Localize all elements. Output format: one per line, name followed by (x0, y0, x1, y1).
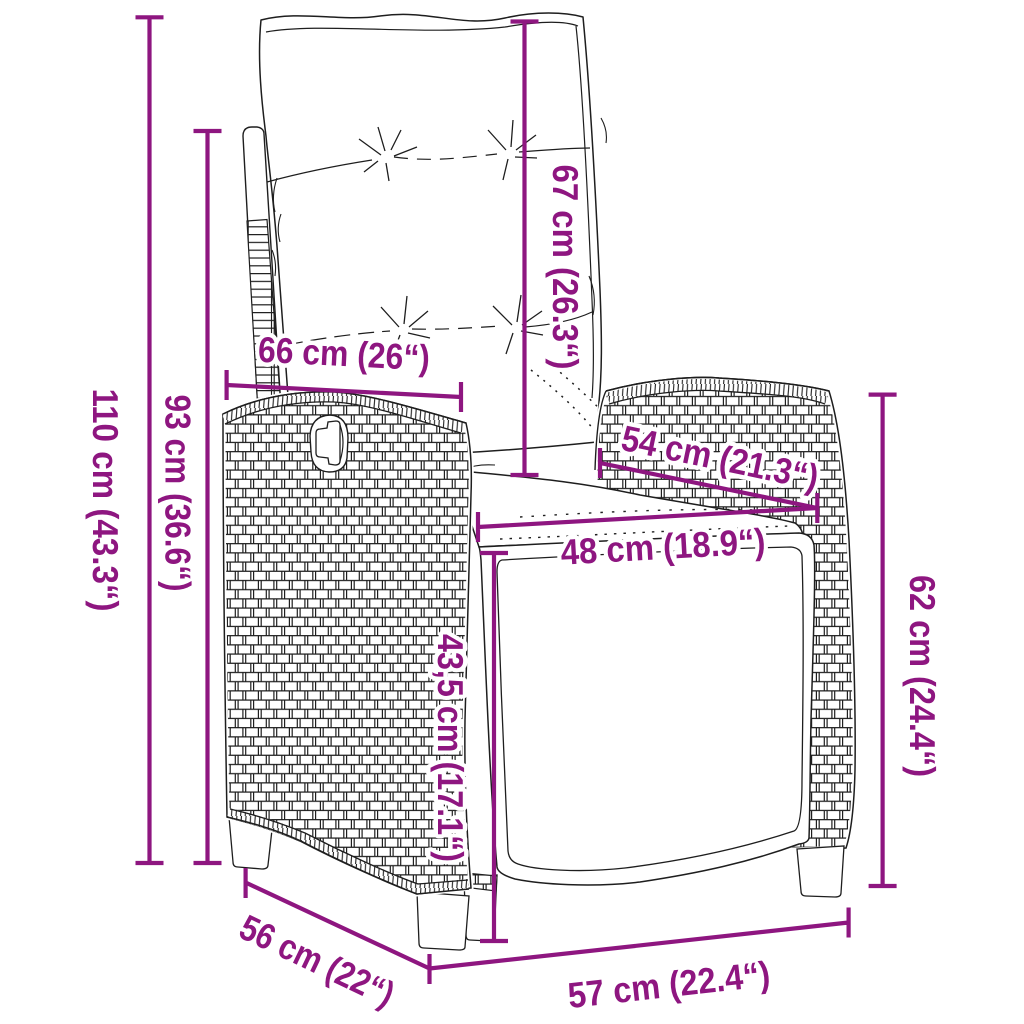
svg-text:66 cm (26“): 66 cm (26“) (257, 329, 431, 379)
svg-text:62 cm (24.4“): 62 cm (24.4“) (902, 575, 943, 777)
svg-text:43,5 cm (17.1“): 43,5 cm (17.1“) (430, 634, 471, 862)
svg-text:67 cm (26.3“): 67 cm (26.3“) (545, 165, 586, 370)
svg-text:110 cm (43.3“): 110 cm (43.3“) (85, 389, 126, 612)
svg-text:93 cm (36.6“): 93 cm (36.6“) (158, 395, 199, 592)
